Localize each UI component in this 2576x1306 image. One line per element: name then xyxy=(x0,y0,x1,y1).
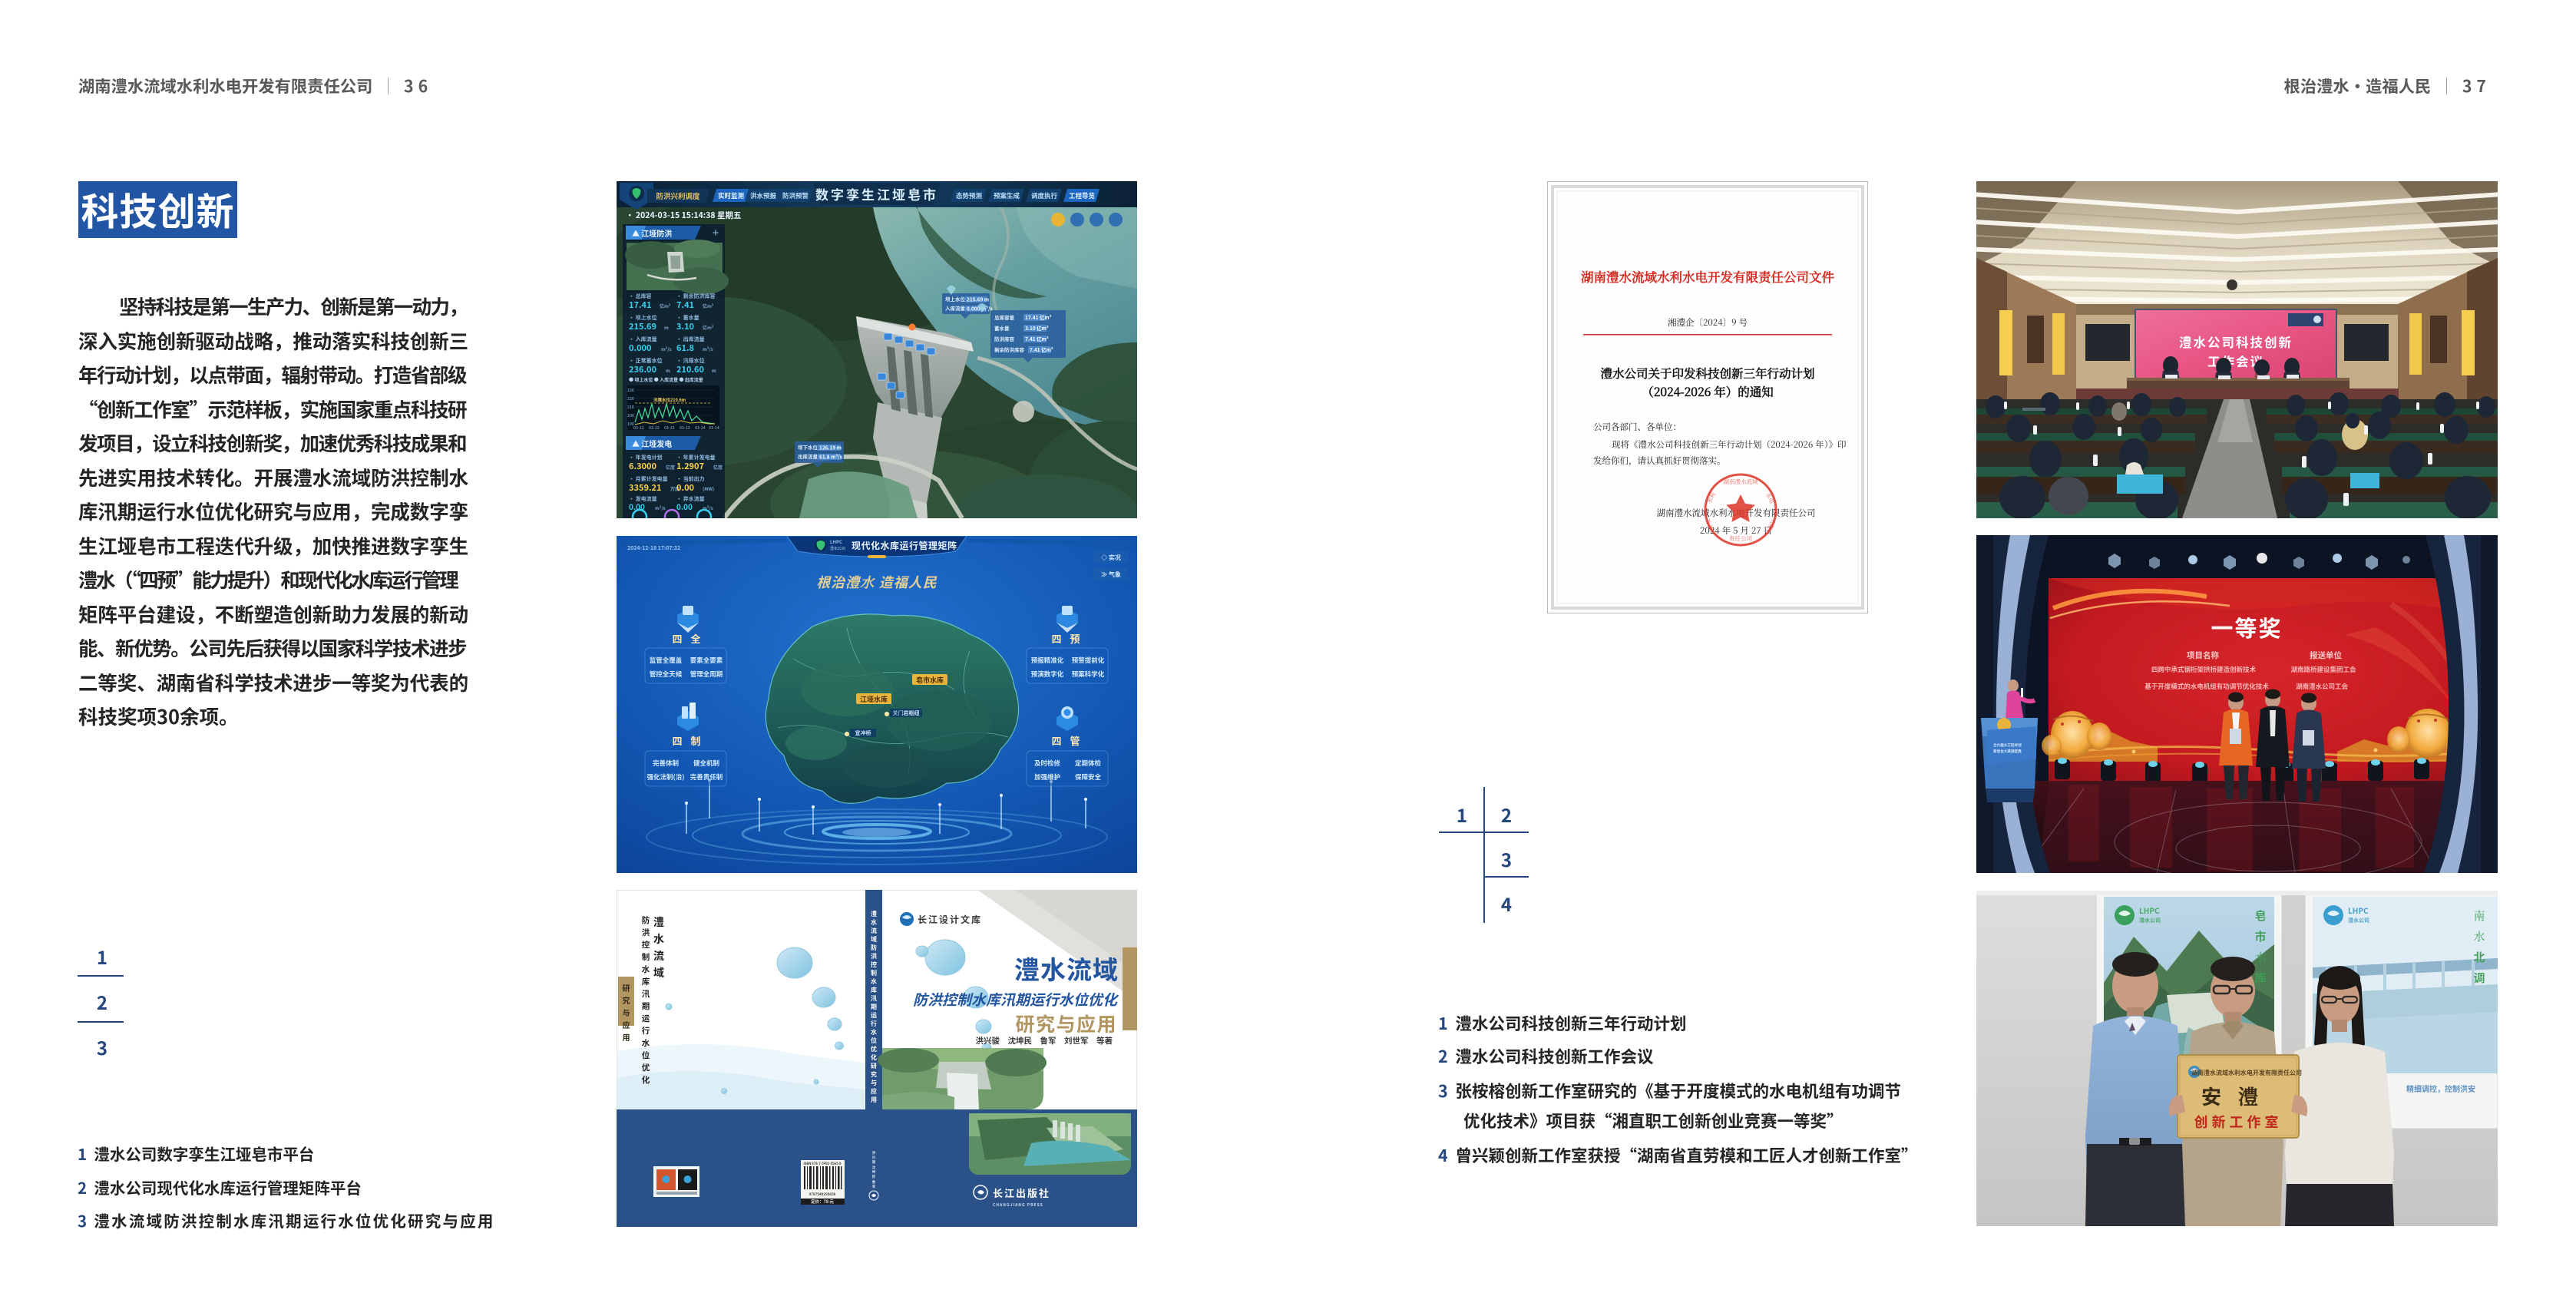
svg-text:研究与应用: 研究与应用 xyxy=(1015,1010,1117,1037)
svg-text:湖南澧水流域: 湖南澧水流域 xyxy=(1724,478,1758,486)
svg-text:管理全周期: 管理全周期 xyxy=(690,670,723,679)
svg-text:m: m xyxy=(664,324,669,331)
svg-text:防洪库容: 防洪库容 xyxy=(994,335,1015,342)
svg-text:LHPC: LHPC xyxy=(830,538,842,545)
svg-text:▲ 江垭发电: ▲ 江垭发电 xyxy=(632,438,672,449)
svg-text:亿度: 亿度 xyxy=(666,464,675,471)
svg-text:预案生成: 预案生成 xyxy=(994,191,1020,200)
svg-text:3.10 亿m³: 3.10 亿m³ xyxy=(1025,324,1049,332)
svg-text:研究与应用: 研究与应用 xyxy=(620,982,632,1043)
svg-text:湖南澧水流域水利水电开发有限责任公司文件: 湖南澧水流域水利水电开发有限责任公司文件 xyxy=(1581,267,1835,286)
svg-text:防洪控制水库汛期运行水位优化: 防洪控制水库汛期运行水位优化 xyxy=(640,914,652,1086)
svg-text:调度执行: 调度执行 xyxy=(1031,191,1058,200)
svg-text:完善责任制: 完善责任制 xyxy=(690,772,723,782)
svg-text:四 管: 四 管 xyxy=(1052,733,1083,748)
svg-text:7.41 亿m³: 7.41 亿m³ xyxy=(1025,335,1049,342)
svg-text:洪兴骏 沈坤民 鲁军: 洪兴骏 沈坤民 鲁军 xyxy=(871,1150,876,1189)
svg-text:总库容量: 总库容量 xyxy=(994,313,1015,321)
svg-text:强化法制(治): 强化法制(治) xyxy=(647,772,685,782)
svg-text:皂市水库: 皂市水库 xyxy=(2253,908,2269,990)
svg-text:剩余防洪库容: 剩余防洪库容 xyxy=(994,346,1025,353)
svg-text:（2024-2026 年）的通知: （2024-2026 年）的通知 xyxy=(1642,383,1774,400)
svg-text:四跨中承式钢桁架拱桥建造创新技术: 四跨中承式钢桁架拱桥建造创新技术 xyxy=(2151,665,2257,674)
svg-text:预报精准化: 预报精准化 xyxy=(1031,656,1064,665)
svg-text:126.19 m: 126.19 m xyxy=(819,444,842,451)
svg-text:关门岩枢纽: 关门岩枢纽 xyxy=(893,709,920,717)
svg-text:一等奖: 一等奖 xyxy=(2211,612,2282,643)
svg-text:• 2024-03-15 15:14:38 星期五: • 2024-03-15 15:14:38 星期五 xyxy=(626,210,741,221)
svg-text:安澧: 安澧 xyxy=(2201,1082,2275,1110)
svg-text:m³/s: m³/s xyxy=(655,504,666,511)
svg-text:m: m xyxy=(666,367,670,374)
svg-text:亿度: 亿度 xyxy=(713,464,723,471)
svg-text:项目名称: 项目名称 xyxy=(2187,650,2220,661)
svg-text:预案科学化: 预案科学化 xyxy=(1072,670,1105,679)
svg-text:CHANGJIANG PRESS: CHANGJIANG PRESS xyxy=(993,1202,1043,1208)
svg-text:215.69 m: 215.69 m xyxy=(967,296,989,303)
svg-text:创新工作室: 创新工作室 xyxy=(2194,1112,2283,1132)
svg-text:完善体制: 完善体制 xyxy=(653,759,679,768)
svg-text:新创业大赛颁奖典: 新创业大赛颁奖典 xyxy=(1993,749,2022,754)
svg-text:报送单位: 报送单位 xyxy=(2310,650,2343,661)
svg-text:洪兴骏 沈坤民 鲁军 刘世军 等著: 洪兴骏 沈坤民 鲁军 刘世军 等著 xyxy=(976,1035,1113,1046)
svg-text:汛限水位210.6m: 汛限水位210.6m xyxy=(653,397,686,403)
svg-text:出库流量: 出库流量 xyxy=(798,452,818,460)
svg-text:全六届大工匠杯创: 全六届大工匠杯创 xyxy=(1993,742,2022,748)
svg-text:湘澧企〔2024〕9 号: 湘澧企〔2024〕9 号 xyxy=(1668,316,1748,329)
svg-text:亿m³: 亿m³ xyxy=(660,303,671,309)
svg-text:1.2907: 1.2907 xyxy=(676,460,704,472)
svg-text:m³/s: m³/s xyxy=(703,346,713,352)
svg-text:0.00: 0.00 xyxy=(676,481,694,494)
svg-text:＋: ＋ xyxy=(712,226,719,238)
svg-text:发给你们，请认真抓好贯彻落实。: 发给你们，请认真抓好贯彻落实。 xyxy=(1593,455,1726,467)
svg-text:210: 210 xyxy=(627,405,634,410)
svg-text:236.00: 236.00 xyxy=(629,363,656,375)
svg-text:61.8 m³/s: 61.8 m³/s xyxy=(819,453,842,461)
svg-text:江垭水库: 江垭水库 xyxy=(860,694,888,704)
svg-text:皂市水库: 皂市水库 xyxy=(916,675,944,685)
svg-text:03-14: 03-14 xyxy=(709,425,719,431)
svg-text:亿m³: 亿m³ xyxy=(703,303,714,309)
svg-text:6.3000: 6.3000 xyxy=(629,460,656,472)
svg-text:17.41 亿m³: 17.41 亿m³ xyxy=(1025,313,1052,321)
svg-text:230: 230 xyxy=(627,388,634,393)
svg-text:澧水公司: 澧水公司 xyxy=(830,546,845,551)
svg-text:四 全: 四 全 xyxy=(673,631,704,646)
svg-text:(MW): (MW) xyxy=(703,485,714,492)
svg-text:现将《澧水公司科技创新三年行动计划（2024-2026 年）: 现将《澧水公司科技创新三年行动计划（2024-2026 年）》印 xyxy=(1612,438,1846,451)
svg-text:定价：78 元: 定价：78 元 xyxy=(811,1199,834,1205)
svg-text:● 坝上水位 ● 入库流量 ● 出库流量: ● 坝上水位 ● 入库流量 ● 出库流量 xyxy=(629,376,703,383)
svg-text:南水北调: 南水北调 xyxy=(2472,908,2488,990)
svg-text:澧水流域: 澧水流域 xyxy=(651,914,666,982)
svg-text:3.10: 3.10 xyxy=(676,320,694,332)
svg-text:坝下水位: 坝下水位 xyxy=(798,443,818,451)
svg-text:蓄水量: 蓄水量 xyxy=(994,324,1010,332)
svg-text:◇ 实况: ◇ 实况 xyxy=(1101,554,1121,562)
svg-text:四 制: 四 制 xyxy=(673,733,704,748)
svg-text:根治澧水 造福人民: 根治澧水 造福人民 xyxy=(816,572,937,592)
svg-text:加强维护: 加强维护 xyxy=(1034,772,1060,782)
svg-text:3359.21: 3359.21 xyxy=(629,481,662,494)
svg-text:现代化水库运行管理矩阵: 现代化水库运行管理矩阵 xyxy=(852,539,957,552)
svg-text:数字孪生江垭皂市: 数字孪生江垭皂市 xyxy=(815,184,938,203)
svg-text:定期体检: 定期体检 xyxy=(1075,759,1102,768)
svg-text:03-13: 03-13 xyxy=(664,425,675,431)
svg-text:03-12: 03-12 xyxy=(633,425,644,431)
svg-text:保障安全: 保障安全 xyxy=(1075,772,1102,782)
svg-text:200: 200 xyxy=(627,413,634,418)
svg-text:态势预测: 态势预测 xyxy=(956,191,982,200)
svg-text:2024-12-18 17:07:32: 2024-12-18 17:07:32 xyxy=(627,544,680,552)
svg-text:及时检修: 及时检修 xyxy=(1034,759,1061,768)
svg-text:亿m³: 亿m³ xyxy=(703,324,714,331)
svg-text:防洪预警: 防洪预警 xyxy=(782,191,809,200)
svg-text:m³/s: m³/s xyxy=(661,346,672,352)
svg-text:0.00: 0.00 xyxy=(676,501,693,512)
svg-text:洪水预报: 洪水预报 xyxy=(750,191,777,200)
svg-text:澧水公司科技创新: 澧水公司科技创新 xyxy=(2179,332,2293,351)
svg-text:湖南澧水公司工会: 湖南澧水公司工会 xyxy=(2296,682,2349,691)
svg-text:责任公司: 责任公司 xyxy=(1729,534,1752,543)
svg-text:61.8: 61.8 xyxy=(676,342,694,354)
svg-text:坝上水位: 坝上水位 xyxy=(945,295,966,303)
svg-text:湖南路桥建设集团工会: 湖南路桥建设集团工会 xyxy=(2290,665,2356,674)
svg-text:公司各部门、各单位：: 公司各部门、各单位： xyxy=(1593,421,1682,433)
svg-text:防洪兴利调度: 防洪兴利调度 xyxy=(656,190,700,201)
svg-text:220: 220 xyxy=(627,396,634,402)
svg-text:入库流量: 入库流量 xyxy=(945,304,966,312)
svg-text:17.41: 17.41 xyxy=(629,299,652,311)
svg-text:≫ 气象: ≫ 气象 xyxy=(1101,570,1121,579)
svg-text:澧水流域防洪控制水库汛期运行水位优化研究与应用: 澧水流域防洪控制水库汛期运行水位优化研究与应用 xyxy=(870,910,878,1104)
svg-text:基于开度模式的水电机组有功调节优化技术: 基于开度模式的水电机组有功调节优化技术 xyxy=(2144,682,2269,691)
svg-text:湖南澧水流域水利水电开发有限责任公司: 湖南澧水流域水利水电开发有限责任公司 xyxy=(2191,1069,2302,1077)
svg-text:防洪控制水库汛期运行水位优化: 防洪控制水库汛期运行水位优化 xyxy=(913,989,1119,1010)
svg-text:0.000: 0.000 xyxy=(629,342,652,354)
svg-text:监管全覆盖: 监管全覆盖 xyxy=(650,656,683,665)
svg-text:215.69: 215.69 xyxy=(629,320,656,332)
svg-text:长江出版社: 长江出版社 xyxy=(993,1185,1050,1200)
svg-text:预警提前化: 预警提前化 xyxy=(1072,656,1105,665)
svg-text:▲ 江垭防洪: ▲ 江垭防洪 xyxy=(632,227,672,239)
svg-text:LHPC: LHPC xyxy=(2348,904,2369,916)
svg-text:7.41: 7.41 xyxy=(676,299,694,311)
svg-text:工程导览: 工程导览 xyxy=(1069,191,1096,200)
svg-text:210.60: 210.60 xyxy=(676,363,704,375)
svg-text:要素全要素: 要素全要素 xyxy=(690,656,723,665)
svg-text:澧水公司关于印发科技创新三年行动计划: 澧水公司关于印发科技创新三年行动计划 xyxy=(1600,365,1815,382)
svg-text:9787549295658: 9787549295658 xyxy=(809,1192,836,1197)
svg-text:澧水流域: 澧水流域 xyxy=(1014,950,1119,987)
svg-text:7.41 亿m³: 7.41 亿m³ xyxy=(1030,346,1053,353)
svg-text:03-12: 03-12 xyxy=(649,425,660,431)
svg-text:健全机制: 健全机制 xyxy=(693,759,719,768)
svg-text:预演数字化: 预演数字化 xyxy=(1031,670,1064,679)
svg-text:管控全天候: 管控全天候 xyxy=(650,670,683,679)
svg-text:03-13: 03-13 xyxy=(680,425,690,431)
svg-text:LHPC: LHPC xyxy=(2139,904,2160,916)
svg-text:实时监测: 实时监测 xyxy=(718,191,744,200)
svg-text:澧水公司: 澧水公司 xyxy=(2348,917,2369,924)
svg-text:长江设计文库: 长江设计文库 xyxy=(918,913,982,926)
svg-text:四 预: 四 预 xyxy=(1052,631,1083,646)
svg-text:澧水公司: 澧水公司 xyxy=(2139,917,2161,924)
svg-text:ISBN 978-7-5492-9565-8: ISBN 978-7-5492-9565-8 xyxy=(803,1162,842,1166)
svg-text:m: m xyxy=(712,367,716,374)
svg-text:精细调控，控制洪安: 精细调控，控制洪安 xyxy=(2406,1083,2475,1094)
svg-text:03-14: 03-14 xyxy=(695,425,706,431)
svg-text:宜冲桥: 宜冲桥 xyxy=(855,729,871,737)
